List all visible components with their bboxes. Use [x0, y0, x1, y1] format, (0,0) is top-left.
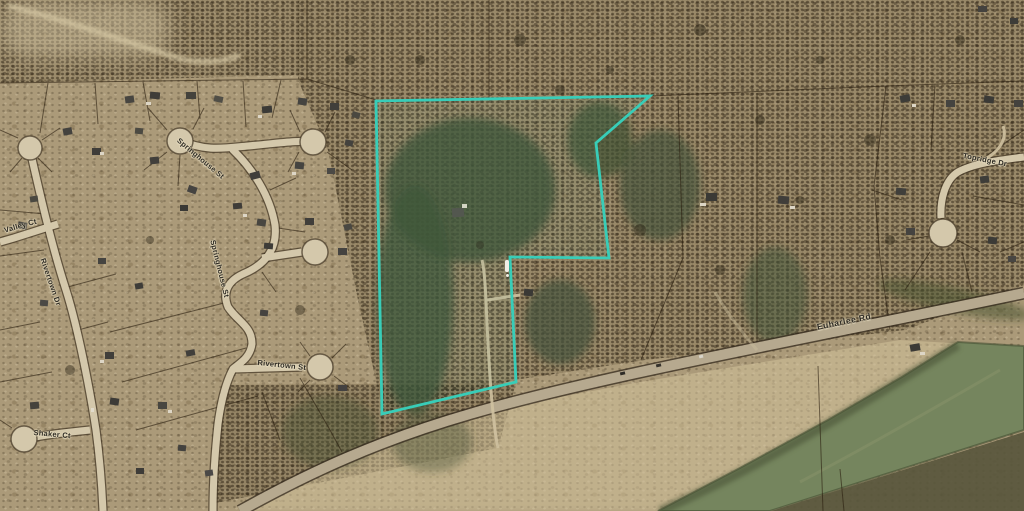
- aerial-map[interactable]: Valley Ct Rivertown Dr Springhouse St Sp…: [0, 0, 1024, 511]
- road-topridge-dr: [941, 157, 1024, 218]
- road-rivertown-dr: [30, 150, 103, 511]
- road-springhouse-loop: [213, 149, 275, 511]
- marker-icon: [505, 260, 509, 272]
- road-springhouse-upper: [180, 140, 313, 148]
- dirt-path: [8, 6, 240, 62]
- river: [658, 342, 1024, 511]
- map-scene: [0, 0, 1024, 511]
- marker-dot: [506, 274, 509, 277]
